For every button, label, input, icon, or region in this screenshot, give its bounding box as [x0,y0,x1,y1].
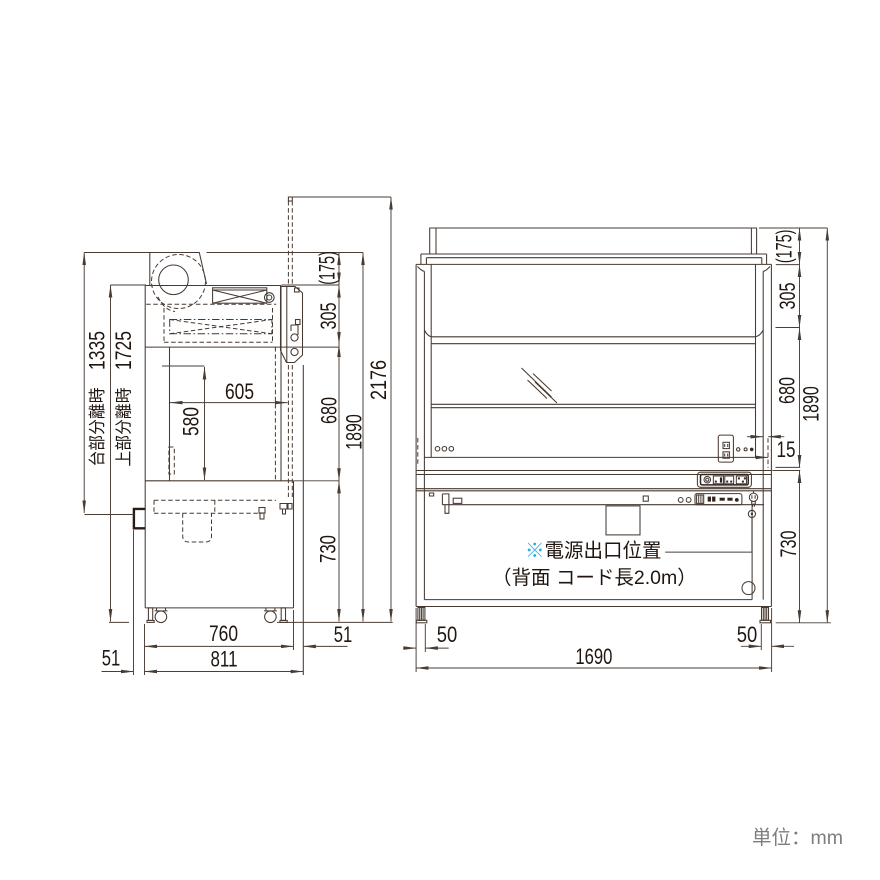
svg-text:680: 680 [775,377,800,404]
svg-text:(175): (175) [772,230,797,264]
svg-text:605: 605 [225,379,254,404]
svg-text:2176: 2176 [366,360,391,400]
svg-text:50: 50 [737,622,758,647]
svg-text:305: 305 [316,303,341,330]
svg-text:15: 15 [777,437,796,462]
svg-text:760: 760 [209,621,238,646]
svg-text:1335: 1335 [85,331,110,370]
svg-text:1890: 1890 [799,386,824,422]
svg-text:上部分離時: 上部分離時 [115,388,134,467]
svg-text:単位：mm: 単位：mm [752,827,843,849]
svg-text:※電源出口位置: ※電源出口位置 [525,540,662,562]
svg-text:580: 580 [179,407,204,436]
svg-text:1725: 1725 [111,331,136,370]
svg-text:730: 730 [316,535,341,563]
svg-text:50: 50 [437,622,458,647]
svg-text:51: 51 [334,622,353,647]
svg-text:811: 811 [211,647,238,672]
svg-text:680: 680 [317,397,342,424]
svg-text:51: 51 [102,646,121,671]
svg-text:台部分離時: 台部分離時 [88,388,107,467]
svg-text:(175): (175) [315,251,340,285]
svg-text:305: 305 [775,283,800,310]
svg-text:730: 730 [776,531,801,558]
svg-text:1890: 1890 [342,414,367,450]
svg-text:1690: 1690 [575,644,612,669]
svg-text:（背面 コード長2.0m）: （背面 コード長2.0m） [492,567,697,589]
